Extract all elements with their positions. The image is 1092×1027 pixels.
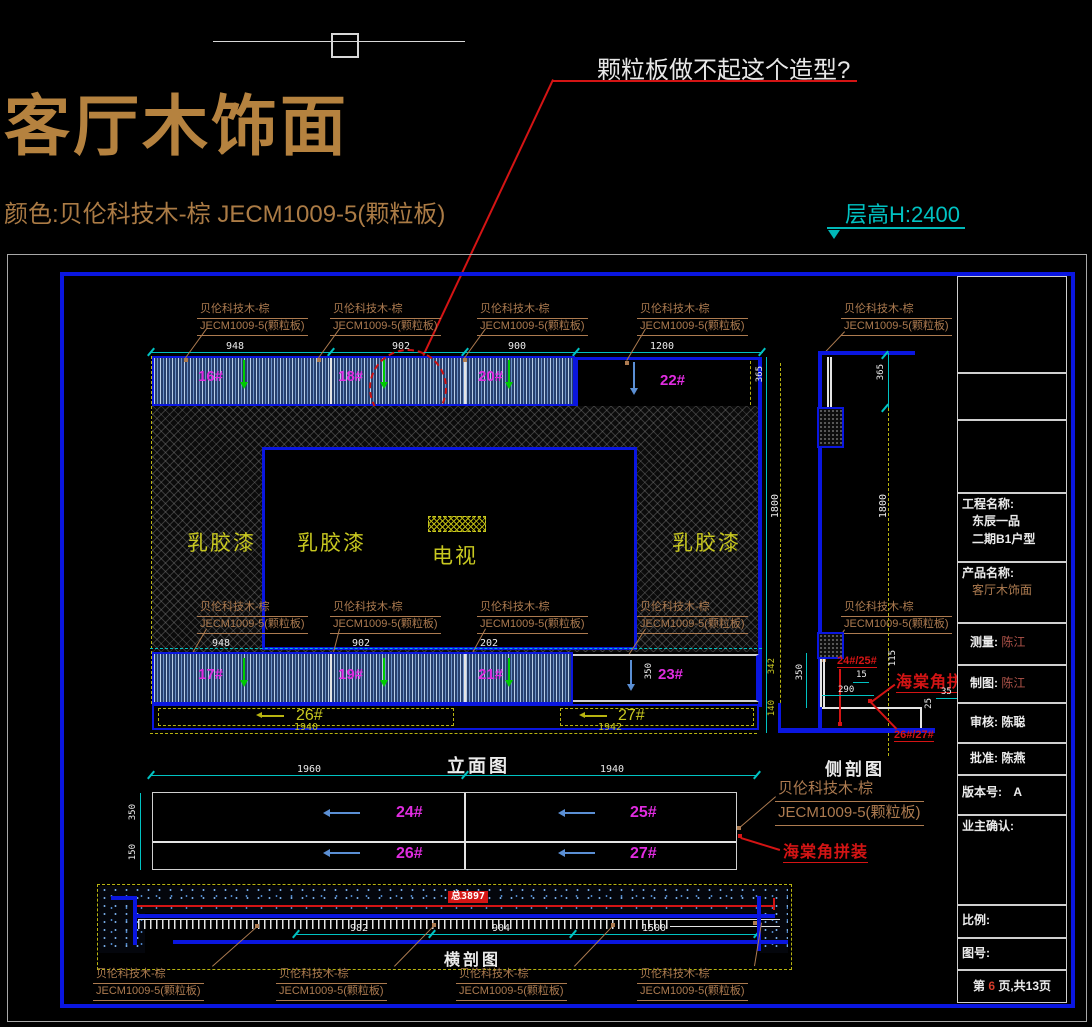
strip-27-outline (560, 708, 754, 726)
audit-value: 陈聪 (1001, 715, 1025, 729)
panel-joint (464, 654, 466, 702)
side-mini-dim (822, 695, 874, 696)
dim-text: 202 (480, 639, 498, 649)
scale-label: 比例: (962, 913, 990, 927)
plan-left-dim-line (140, 793, 141, 870)
dim-text: 350 (796, 664, 805, 680)
project-line2: 二期B1户型 (962, 531, 1062, 548)
material-label: 贝伦科技木-棕JECM1009-5(颗粒板) (93, 967, 204, 1001)
tv-socket (428, 516, 486, 532)
console-right-line (920, 707, 922, 728)
blue-arrow-icon (630, 660, 632, 684)
leader-dot (737, 826, 741, 830)
audit-label: 审核: (970, 715, 998, 729)
leader-dot (753, 921, 757, 925)
blue-arrow-icon (565, 852, 595, 854)
page-title: 客厅木饰面 (4, 92, 349, 165)
fluted-panel-profile (138, 919, 670, 929)
dim-text: 948 (212, 639, 230, 649)
cad-sheet: 客厅木饰面 颜色:贝伦科技木-棕 JECM1009-5(颗粒板) 颗粒板做不起这… (0, 0, 1092, 1027)
panel-number: 18# (338, 368, 363, 385)
dim-line-top (150, 352, 763, 353)
console-left-step (778, 703, 781, 728)
product-value: 客厅木饰面 (962, 582, 1062, 599)
survey-value: 陈江 (1001, 635, 1025, 649)
leader-dot (611, 923, 615, 927)
titleblock-cell-empty-3 (957, 420, 1067, 493)
paint-label: 乳胶漆 (672, 527, 741, 557)
dim-text: 350 (645, 663, 654, 679)
panel-number: 23# (658, 666, 683, 683)
material-label: 贝伦科技木-棕JECM1009-5(颗粒板) (330, 600, 441, 634)
version-value: A (1005, 785, 1022, 799)
titleblock-cell-empty-1 (957, 276, 1067, 373)
panel-number: 27# (630, 845, 657, 863)
side-centerline (888, 408, 889, 756)
dim-text: 982 (350, 924, 368, 934)
leader-dot (255, 924, 259, 928)
dim-text: 25 (925, 698, 934, 709)
floor-height-underline (827, 227, 965, 229)
paint-label: 乳胶漆 (297, 527, 366, 557)
figno-label: 图号: (962, 946, 990, 960)
flat-panel-profile (670, 919, 780, 927)
page-suffix: 页,共13页 (998, 979, 1051, 993)
draft-label: 制图: (970, 676, 998, 690)
red-leader-dot (838, 722, 842, 726)
material-label: 贝伦科技木-棕JECM1009-5(颗粒板) (456, 967, 567, 1001)
cross-blue-line-2 (173, 940, 788, 944)
approve-value: 陈燕 (1001, 751, 1025, 765)
paint-label: 乳胶漆 (187, 527, 256, 557)
annotation-underline (552, 80, 857, 82)
leader-dot (317, 358, 321, 362)
cross-blue-line-1 (135, 914, 775, 918)
blue-arrow-icon (330, 852, 360, 854)
page-number: 6 (988, 979, 995, 993)
floor-height-marker-icon (828, 230, 840, 239)
titleblock-version: 版本号: A (957, 775, 1067, 815)
survey-label: 测量: (970, 635, 998, 649)
total-dim-tick (773, 898, 775, 910)
leader-dot (463, 358, 467, 362)
material-label: 贝伦科技木-棕JECM1009-5(颗粒板) (477, 302, 588, 336)
panel-number: 19# (338, 666, 363, 683)
panel-number: 21# (478, 666, 503, 683)
side-panel-top (827, 357, 832, 407)
section-marker-inner-line (333, 41, 357, 42)
height-reference-line (780, 363, 781, 733)
dim-text: 1800 (879, 494, 889, 518)
dim-text: 35 (941, 688, 952, 697)
page-subtitle: 颜色:贝伦科技木-棕 JECM1009-5(颗粒板) (4, 194, 445, 229)
miter-joint-label: 海棠角拼装 (783, 838, 868, 863)
green-arrow-icon (508, 658, 510, 680)
panel-number: 22# (660, 372, 685, 389)
dim-text: 15 (856, 671, 867, 680)
panel-joint (464, 358, 466, 404)
dim-text: 1940 (600, 765, 624, 775)
panel-number: 24# (396, 804, 423, 822)
dim-text: 140 (768, 700, 777, 716)
panel-number: 17# (198, 666, 223, 683)
titleblock-owner: 业主确认: (957, 815, 1067, 905)
approve-label: 批准: (970, 751, 998, 765)
section-marker-square (331, 33, 359, 58)
dim-text: 904 (492, 924, 510, 934)
material-label: 贝伦科技木-棕JECM1009-5(颗粒板) (637, 600, 748, 634)
panel-joint (330, 654, 332, 702)
console-top-line (822, 707, 920, 709)
panel-number: 25# (630, 804, 657, 822)
floor-height-label: 层高H:2400 (845, 197, 960, 229)
blue-arrow-icon (565, 812, 595, 814)
titleblock-page: 第 6 页,共13页 (957, 970, 1067, 1003)
green-arrow-icon (508, 360, 510, 382)
dim-text: 902 (352, 639, 370, 649)
dim-text: 948 (226, 342, 244, 352)
version-label: 版本号: (962, 785, 1002, 799)
plan-divider-v (464, 793, 466, 869)
side-blocking-top (817, 407, 844, 448)
total-dim-text: 总3897 (448, 891, 488, 903)
titleblock-survey: 测量: 陈江 (957, 623, 1067, 665)
green-arrow-icon (243, 360, 245, 382)
titleblock-approve: 批准: 陈燕 (957, 743, 1067, 775)
material-label: 贝伦科技木-棕JECM1009-5(颗粒板) (197, 302, 308, 336)
side-ceiling-line (818, 351, 915, 355)
dim-text: 150 (129, 844, 138, 860)
material-label: 贝伦科技木-棕JECM1009-5(颗粒板) (637, 967, 748, 1001)
titleblock-cell-empty-2 (957, 373, 1067, 420)
red-leader-line (840, 669, 842, 725)
titleblock-product: 产品名称: 客厅木饰面 (957, 562, 1067, 623)
yellow-arrow-icon (585, 715, 607, 717)
dim-text: 290 (838, 686, 854, 695)
dim-text: 1200 (650, 342, 674, 352)
panel-number: 26# (396, 845, 423, 863)
green-arrow-icon (243, 658, 245, 680)
dim-line-yellow (150, 733, 757, 734)
titleblock-project: 工程名称: 东辰一品 二期B1户型 (957, 493, 1067, 562)
leader-dot (625, 361, 629, 365)
side-dim-line (806, 653, 807, 708)
owner-label: 业主确认: (962, 819, 1014, 833)
side-section-title: 侧剖图 (825, 755, 885, 780)
dim-text: 1800 (771, 494, 781, 518)
project-label: 工程名称: (962, 497, 1014, 511)
dim-text: 900 (508, 342, 526, 352)
dim-text: 350 (129, 804, 138, 820)
side-panel-bottom (820, 659, 825, 707)
dim-text: 342 (768, 658, 777, 674)
dim-text: 1960 (297, 765, 321, 775)
material-label: 贝伦科技木-棕JECM1009-5(颗粒板) (276, 967, 387, 1001)
dim-text: 1942 (598, 723, 622, 733)
material-label: 贝伦科技木-棕JECM1009-5(颗粒板) (330, 302, 441, 336)
titleblock-draft: 制图: 陈江 (957, 665, 1067, 703)
dim-text: 1500 (642, 924, 666, 934)
cross-dim-line (295, 934, 757, 935)
material-label: 贝伦科技木-棕JECM1009-5(颗粒板) (637, 302, 748, 336)
panel-joint (330, 358, 332, 404)
blue-arrow-icon (330, 812, 360, 814)
material-label: 贝伦科技木-棕JECM1009-5(颗粒板) (477, 600, 588, 634)
side-dim-line (888, 353, 889, 408)
material-label: 贝伦科技木-棕JECM1009-5(颗粒板) (775, 778, 924, 826)
yellow-arrow-icon (262, 715, 284, 717)
dim-text: 365 (756, 366, 765, 382)
tv-label: 电视 (432, 540, 478, 570)
draft-value: 陈江 (1001, 676, 1025, 690)
project-line1: 东辰一品 (962, 513, 1062, 530)
material-label: 贝伦科技木-棕JECM1009-5(颗粒板) (197, 600, 308, 634)
page-prefix: 第 (973, 979, 985, 993)
panel-number: 20# (478, 368, 503, 385)
product-label: 产品名称: (962, 566, 1014, 580)
dim-text: 115 (889, 650, 898, 666)
dim-text: 365 (877, 364, 886, 380)
panel-number: 16# (198, 368, 223, 385)
dim-text: 1940 (294, 723, 318, 733)
total-dim-line (135, 905, 775, 907)
plan-divider-h (153, 841, 736, 843)
blue-arrow-icon (633, 362, 635, 388)
material-label: 贝伦科技木-棕JECM1009-5(颗粒板) (841, 302, 952, 336)
titleblock-figno: 图号: (957, 938, 1067, 970)
dim-line-right-vertical (766, 357, 767, 733)
panel-ref-top: 24#/25# (837, 655, 877, 668)
titleblock-scale: 比例: (957, 905, 1067, 938)
panel-22-edge (750, 361, 751, 405)
dim-line-plan-top (150, 775, 757, 776)
panel-ref-bottom: 26#/27# (894, 729, 934, 742)
green-arrow-icon (383, 658, 385, 680)
concrete-top (99, 886, 788, 913)
leader-dot (184, 358, 188, 362)
dim-line-mid (150, 648, 762, 649)
cross-blue-left-v (133, 896, 137, 945)
material-label: 贝伦科技木-棕JECM1009-5(颗粒板) (841, 600, 952, 634)
leader-dot (432, 923, 436, 927)
side-mini-dim (853, 682, 869, 683)
titleblock-audit: 审核: 陈聪 (957, 703, 1067, 743)
